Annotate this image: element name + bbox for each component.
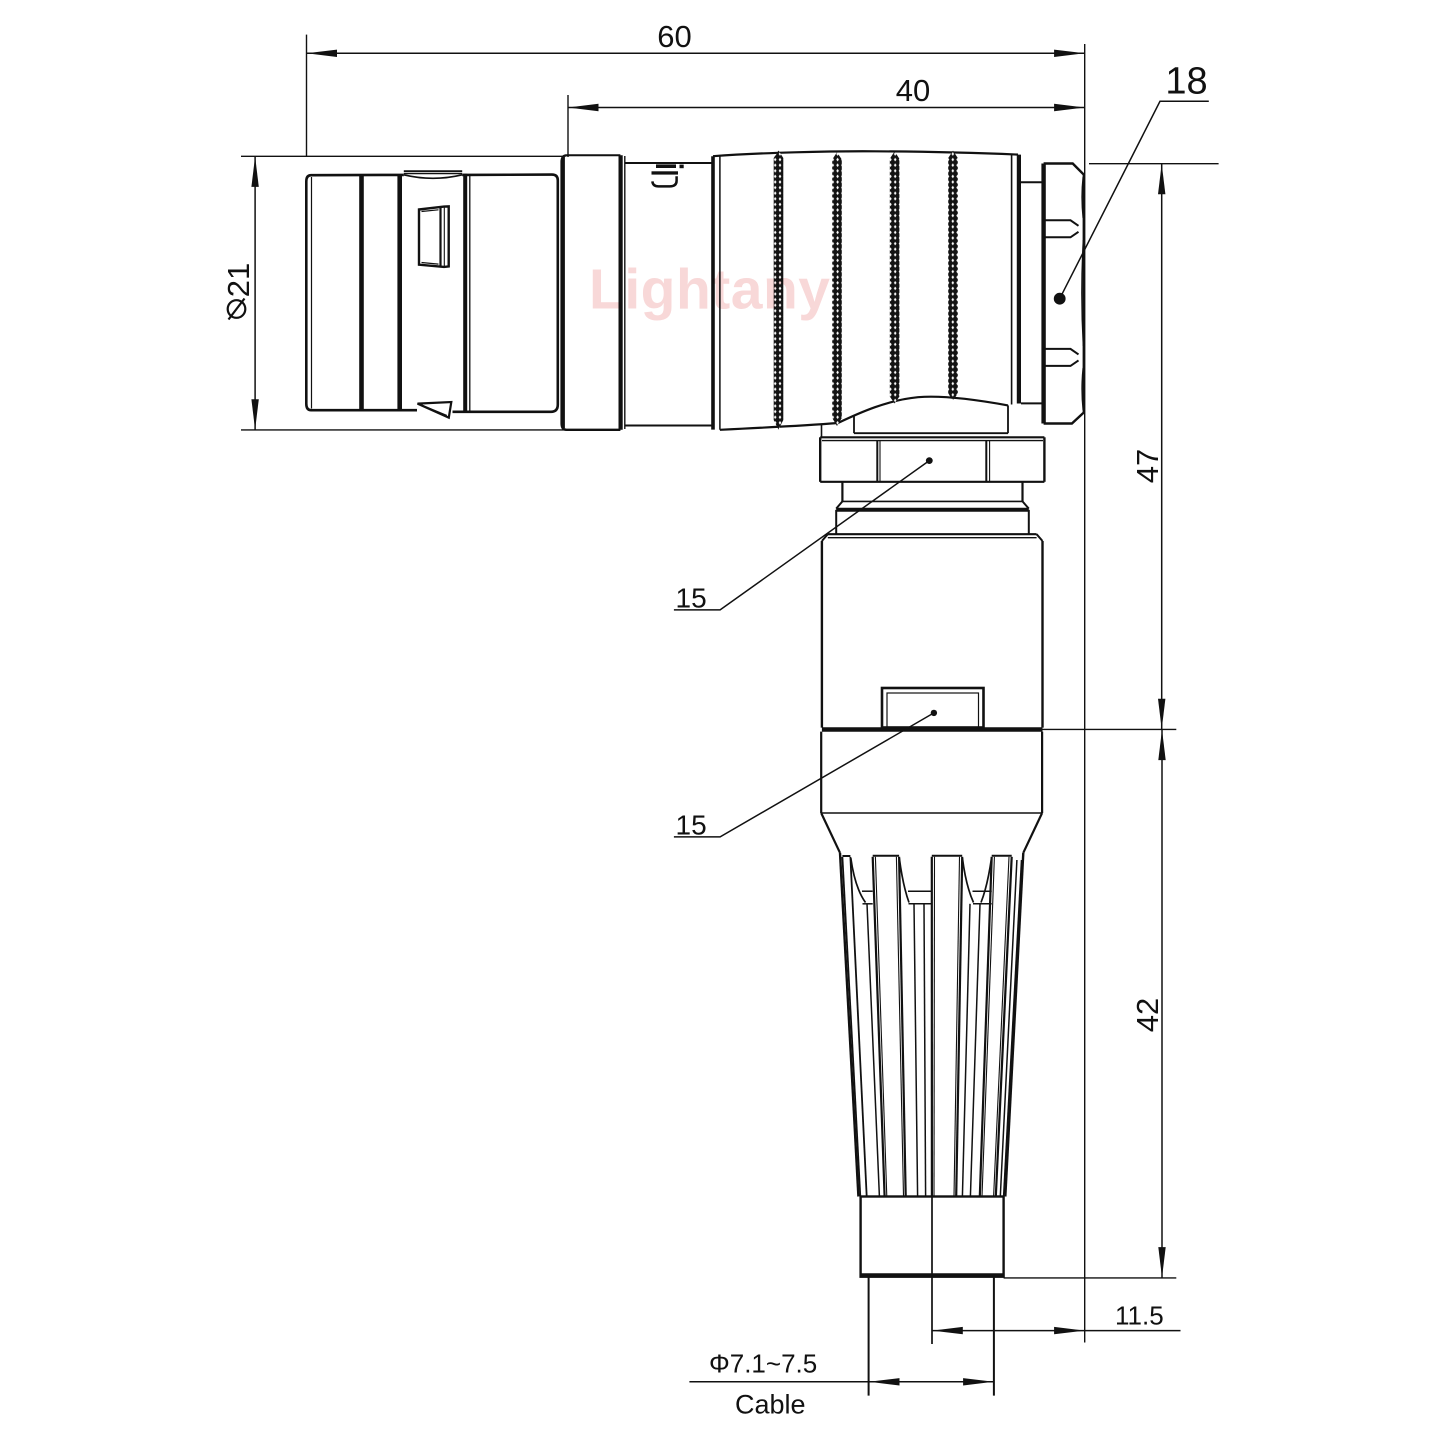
svg-text:Φ7.1~7.5: Φ7.1~7.5 xyxy=(709,1349,817,1379)
svg-text:15: 15 xyxy=(676,809,707,840)
svg-text:40: 40 xyxy=(896,73,930,108)
svg-text:47: 47 xyxy=(1130,449,1165,483)
svg-text:15: 15 xyxy=(676,582,707,613)
svg-text:60: 60 xyxy=(657,19,691,54)
svg-text:Cable: Cable xyxy=(735,1390,806,1420)
svg-text:21: 21 xyxy=(221,263,256,297)
svg-text:11.5: 11.5 xyxy=(1115,1301,1164,1331)
svg-text:Lightany: Lightany xyxy=(589,258,831,322)
svg-text:42: 42 xyxy=(1130,998,1165,1032)
svg-text:18: 18 xyxy=(1165,61,1207,103)
